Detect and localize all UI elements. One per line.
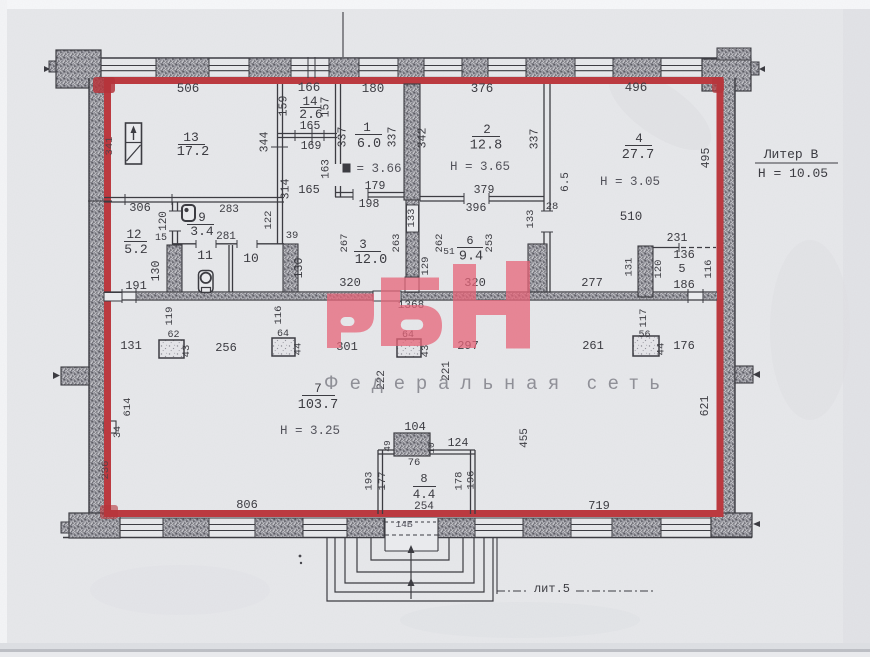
svg-text:186: 186: [673, 278, 695, 292]
svg-text:263: 263: [391, 234, 403, 253]
svg-text:283: 283: [219, 204, 239, 216]
svg-text:379: 379: [474, 184, 495, 197]
svg-text:5.2: 5.2: [124, 242, 147, 257]
svg-text:Н = 3.65: Н = 3.65: [450, 160, 510, 174]
svg-text:56: 56: [638, 330, 650, 341]
svg-text:6: 6: [466, 234, 473, 248]
svg-text:159: 159: [278, 96, 291, 117]
svg-text:614: 614: [122, 398, 134, 417]
svg-text:119: 119: [164, 307, 176, 326]
svg-text:281: 281: [216, 231, 236, 243]
svg-text:117: 117: [638, 309, 650, 328]
svg-text:261: 261: [582, 339, 604, 353]
svg-text:131: 131: [624, 258, 636, 277]
svg-text:337: 337: [529, 129, 542, 150]
svg-text:12: 12: [126, 228, 141, 242]
svg-text:344: 344: [259, 132, 272, 153]
svg-text:178: 178: [454, 472, 466, 491]
svg-text:44: 44: [656, 343, 668, 356]
svg-text:196: 196: [466, 471, 478, 490]
svg-text:267: 267: [339, 234, 351, 253]
svg-text:3.4: 3.4: [190, 224, 214, 239]
svg-text:7: 7: [314, 382, 322, 396]
svg-text:342: 342: [417, 128, 430, 149]
svg-text:1: 1: [363, 121, 371, 135]
svg-text:62: 62: [167, 330, 179, 341]
svg-text:341: 341: [104, 137, 116, 156]
svg-text:120: 120: [158, 211, 170, 231]
svg-text:157: 157: [320, 97, 333, 118]
svg-text:256: 256: [215, 341, 237, 355]
svg-text:130: 130: [150, 261, 163, 282]
svg-text:4.4: 4.4: [413, 488, 436, 502]
svg-text:8: 8: [420, 472, 427, 486]
svg-text:337: 337: [337, 127, 350, 148]
svg-text:198: 198: [359, 198, 380, 211]
svg-text:806: 806: [236, 498, 258, 512]
svg-text:9: 9: [198, 211, 206, 225]
svg-text:4: 4: [635, 132, 643, 146]
svg-text:236: 236: [100, 461, 112, 480]
svg-text:116: 116: [273, 306, 285, 325]
svg-text:10: 10: [243, 251, 259, 266]
svg-text:Н = 3.25: Н = 3.25: [280, 424, 340, 438]
svg-text:49: 49: [382, 440, 393, 452]
svg-text:253: 253: [484, 234, 496, 253]
svg-text:13: 13: [183, 130, 199, 145]
svg-text:510: 510: [620, 210, 643, 224]
svg-text:337: 337: [387, 127, 400, 148]
svg-text:116: 116: [703, 260, 715, 279]
svg-text:124: 124: [448, 437, 469, 450]
svg-text:15: 15: [155, 233, 167, 244]
svg-text:Н = 3.05: Н = 3.05: [600, 175, 660, 189]
svg-text:14Б: 14Б: [395, 519, 412, 530]
svg-text:Федеральная сеть: Федеральная сеть: [324, 373, 671, 394]
svg-text:122: 122: [263, 211, 275, 230]
svg-text:лит.5: лит.5: [534, 582, 570, 596]
svg-text:3: 3: [359, 238, 367, 252]
svg-text:320: 320: [339, 276, 361, 290]
svg-text:9.4: 9.4: [459, 250, 483, 265]
svg-text:277: 277: [581, 276, 603, 290]
svg-text:496: 496: [625, 81, 648, 95]
svg-text:= 3.66: = 3.66: [356, 162, 401, 176]
svg-text:12.0: 12.0: [355, 253, 387, 268]
svg-text:314: 314: [280, 179, 293, 200]
svg-text:10: 10: [426, 442, 437, 454]
svg-text:43: 43: [420, 345, 432, 358]
svg-text:176: 176: [673, 339, 695, 353]
svg-text:180: 180: [362, 82, 385, 96]
svg-text:6.0: 6.0: [357, 137, 381, 152]
svg-text:43: 43: [181, 345, 193, 358]
svg-text:44: 44: [293, 343, 305, 356]
svg-text:169: 169: [301, 140, 322, 153]
svg-text:11: 11: [197, 248, 213, 263]
svg-text:165: 165: [300, 120, 321, 133]
svg-text:130: 130: [293, 258, 306, 279]
svg-text:76: 76: [408, 457, 421, 469]
svg-text:120: 120: [653, 260, 665, 279]
svg-text:396: 396: [466, 202, 487, 215]
svg-text:28: 28: [546, 201, 559, 213]
svg-text:64: 64: [277, 329, 289, 340]
svg-text:506: 506: [177, 82, 200, 96]
svg-text:455: 455: [519, 428, 531, 448]
svg-text:133: 133: [525, 210, 537, 229]
svg-text:165: 165: [298, 183, 320, 197]
svg-text:495: 495: [700, 148, 713, 169]
svg-text:39: 39: [286, 230, 299, 242]
svg-text:166: 166: [298, 81, 321, 95]
svg-text:Н = 10.05: Н = 10.05: [758, 166, 828, 181]
svg-text:131: 131: [120, 339, 142, 353]
svg-text:621: 621: [699, 396, 712, 417]
svg-text:103.7: 103.7: [298, 398, 339, 413]
svg-text:12.8: 12.8: [470, 139, 502, 154]
svg-text:2: 2: [483, 123, 491, 137]
svg-text:17.2: 17.2: [177, 145, 209, 160]
svg-text:27.7: 27.7: [622, 148, 654, 163]
svg-text:51: 51: [443, 246, 455, 257]
svg-text:306: 306: [129, 201, 151, 215]
svg-text:376: 376: [471, 82, 494, 96]
svg-text:Литер В: Литер В: [763, 147, 819, 162]
svg-text:254: 254: [414, 501, 434, 513]
svg-text:179: 179: [365, 180, 386, 193]
svg-text:719: 719: [588, 499, 610, 513]
svg-text:191: 191: [125, 279, 147, 293]
svg-text:136: 136: [673, 248, 695, 262]
svg-text:34: 34: [113, 426, 124, 438]
svg-text:129: 129: [420, 257, 432, 276]
svg-text:193: 193: [364, 472, 376, 491]
svg-text:133: 133: [406, 209, 418, 228]
svg-text:5: 5: [678, 262, 685, 276]
svg-text:177: 177: [377, 472, 389, 491]
svg-text:6.5: 6.5: [560, 172, 572, 192]
svg-text:231: 231: [667, 232, 688, 245]
svg-text:104: 104: [404, 420, 426, 434]
svg-text:163: 163: [321, 159, 333, 179]
